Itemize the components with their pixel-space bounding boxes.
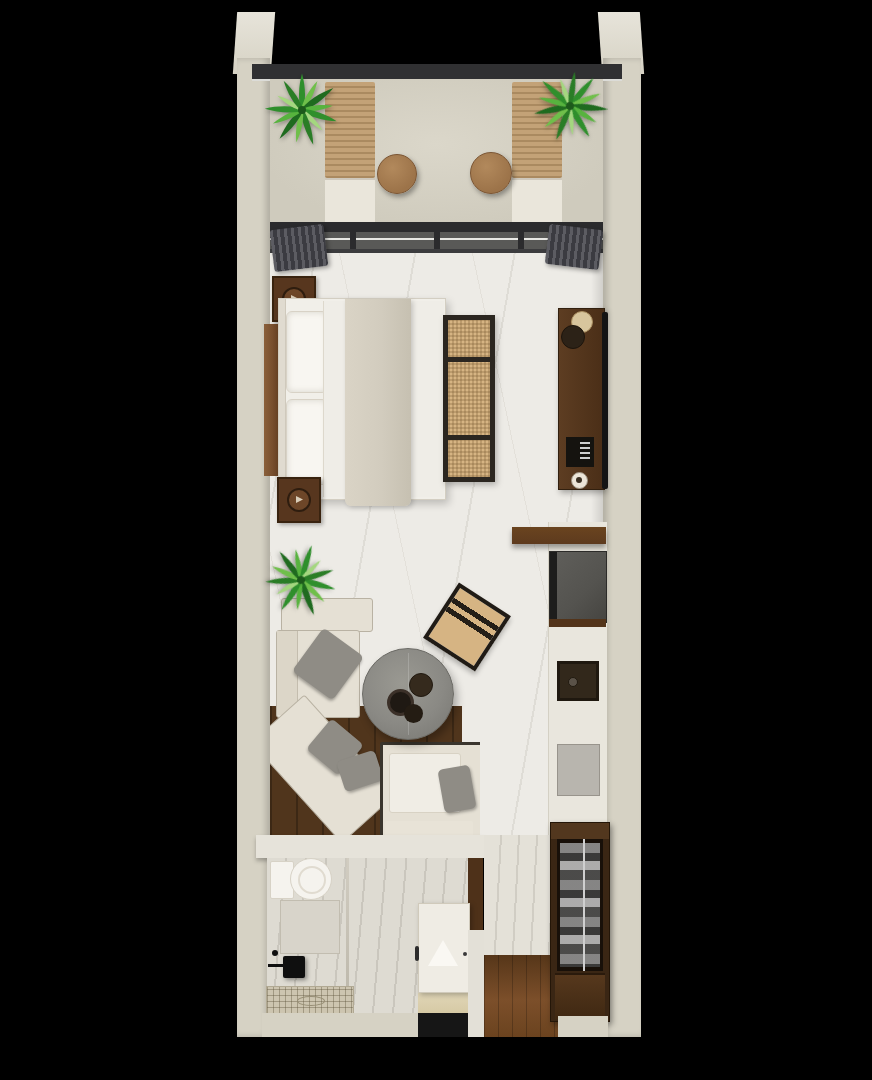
shoe-cabinet (555, 973, 605, 1019)
bathroom-wall (256, 835, 484, 858)
toilet-seat (298, 866, 326, 894)
shower-valve (272, 950, 278, 956)
door-mullion (434, 232, 440, 250)
open-wardrobe (550, 822, 610, 1022)
entry-mat (418, 1013, 470, 1037)
lounger-seat (325, 178, 375, 224)
nightstand-tray (287, 488, 311, 512)
bottom-wall-right (558, 1016, 608, 1037)
round-concrete-coffee-table (362, 648, 454, 740)
double-bed (278, 298, 446, 500)
door-handle (415, 946, 419, 961)
door-mullion (518, 232, 524, 250)
cup (571, 472, 588, 489)
door-mullion (350, 232, 356, 250)
sofa-pillow (437, 765, 476, 814)
bench-divider (448, 357, 490, 362)
bathroom-door (418, 903, 470, 993)
entry-marble (484, 835, 550, 960)
lounger-seat (512, 178, 562, 224)
curtain-right (545, 224, 603, 270)
balcony-plant-left (262, 68, 342, 152)
cup-center (576, 477, 582, 483)
wardrobe-interior (557, 839, 603, 971)
tray-item (404, 704, 423, 723)
toilet-bowl (290, 858, 332, 900)
door-highlight (428, 940, 458, 966)
sofa-left-section (276, 630, 360, 718)
entry-wood-floor (484, 955, 560, 1037)
wardrobe-rail (583, 839, 585, 971)
minibar-side (550, 552, 557, 620)
cane-bench (443, 315, 495, 482)
door-hinge (463, 952, 467, 956)
floor-plan-render (0, 0, 872, 1080)
kitchen-sink (557, 661, 599, 701)
bed-runner (345, 299, 411, 506)
pillow-upper (286, 311, 328, 393)
bottom-wall-left (262, 1013, 418, 1037)
minibar-appliance (549, 551, 607, 623)
shower-head (283, 956, 305, 978)
door-pillar (468, 930, 484, 1037)
entry-veining (484, 835, 550, 960)
round-side-table-right (470, 152, 512, 194)
sofa-bottom-section (380, 742, 480, 844)
vanity-block (280, 900, 340, 954)
round-side-table-left (377, 154, 417, 194)
wall-mounted-tv (602, 312, 608, 489)
hanging-clothes (560, 843, 600, 967)
headboard-panel (264, 324, 278, 476)
machine-grill (580, 442, 590, 460)
shower-drain (297, 996, 325, 1006)
curtain-left (270, 224, 329, 272)
shower-tray (266, 986, 354, 1015)
bathroom-door-jamb (468, 858, 483, 930)
nightstand-lower (277, 477, 321, 523)
coffee-machine (566, 437, 594, 467)
media-console (558, 308, 605, 490)
faucet (568, 677, 578, 687)
kitchen-wall-shelf (512, 527, 606, 544)
console-bowl (561, 325, 585, 349)
pillow-lower (286, 399, 328, 485)
headboard-edge (279, 299, 286, 499)
minibar-ledge (549, 619, 606, 627)
bench-divider (448, 435, 490, 440)
wardrobe-top (551, 823, 609, 839)
sofa-pillow (292, 627, 364, 700)
left-wall (237, 58, 270, 1037)
tray-item (409, 673, 433, 697)
induction-mat (557, 744, 600, 796)
